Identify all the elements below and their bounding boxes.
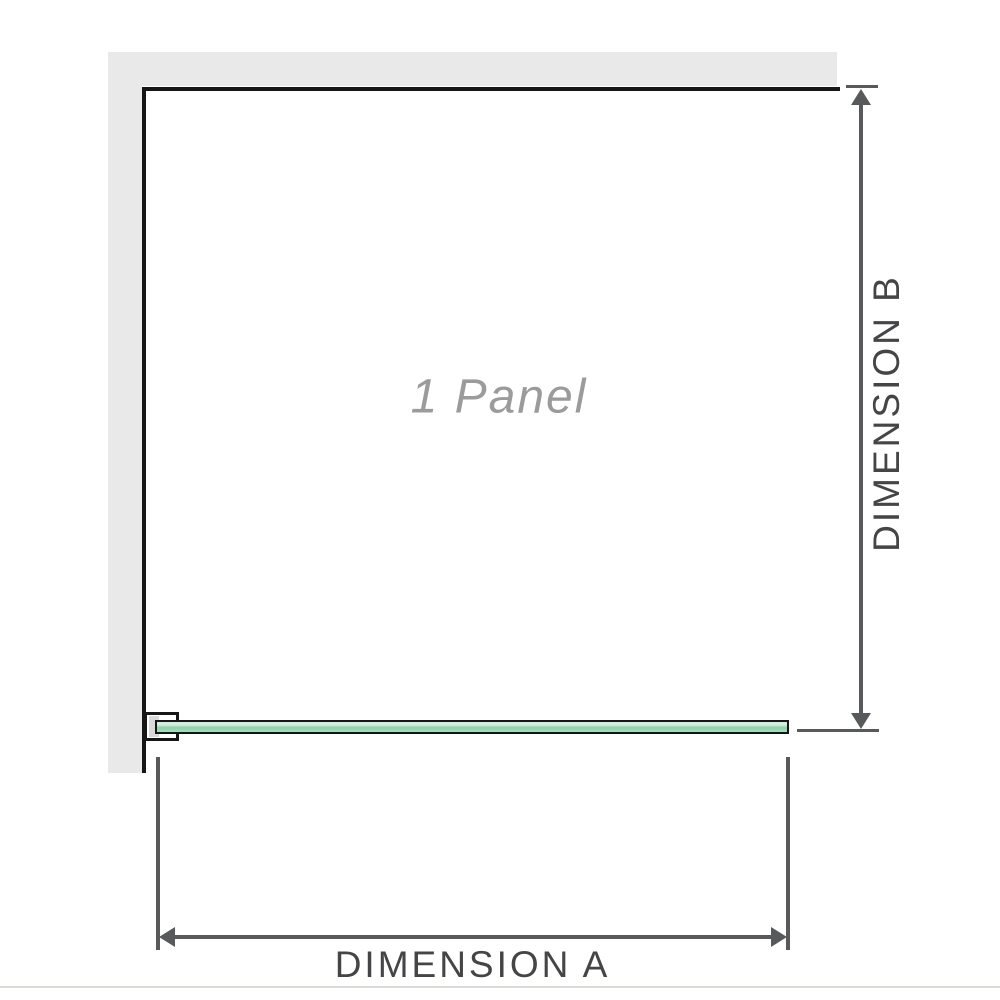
- bottom-divider: [0, 986, 1000, 988]
- panel-outline-top: [142, 87, 840, 91]
- panel-outline-left: [142, 87, 146, 773]
- wall-side-band: [108, 52, 142, 773]
- dimension-b-bottom-tick: [797, 729, 879, 732]
- dimension-b-label: DIMENSION B: [866, 274, 908, 552]
- arrow-up-icon: [851, 89, 871, 105]
- dimension-a-right-extension: [786, 757, 790, 950]
- arrow-down-icon: [851, 713, 871, 729]
- dimension-b-line: [859, 103, 863, 715]
- dimension-a-line: [174, 935, 772, 939]
- glass-panel-bar: [155, 720, 789, 734]
- dimension-b-top-tick: [846, 85, 878, 88]
- shower-screen-diagram: 1 Panel DIMENSION B DIMENSION A: [0, 0, 1000, 1000]
- dimension-a-left-extension: [156, 757, 160, 950]
- panel-count-label: 1 Panel: [411, 370, 588, 425]
- dimension-a-label: DIMENSION A: [155, 944, 790, 986]
- wall-top-band: [108, 52, 837, 86]
